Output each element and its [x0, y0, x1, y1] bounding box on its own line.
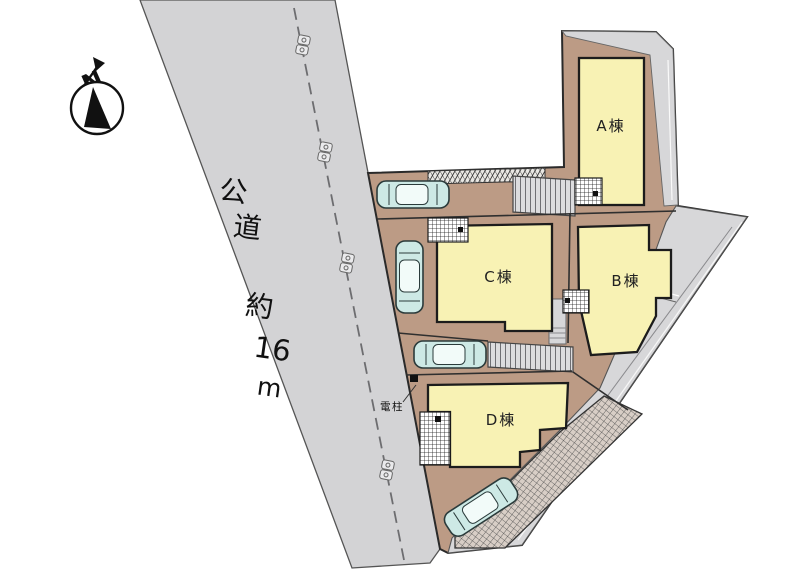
- road-label-char: 約: [244, 288, 276, 324]
- road-label-char: 道: [232, 209, 264, 245]
- building-a-label: A棟: [596, 117, 625, 135]
- utility-pole-label: 電柱: [380, 400, 404, 413]
- north-compass: N: [71, 57, 123, 134]
- entry-dot-b: [565, 298, 570, 303]
- building-c-label: C棟: [484, 268, 513, 286]
- road-label-char: 公: [218, 173, 250, 209]
- car-icon: [377, 181, 449, 208]
- property-plot: A棟 B棟 C棟 D棟: [368, 31, 747, 553]
- site-plan-canvas: 公 道 約 16 m: [0, 0, 800, 585]
- entry-dot-c: [458, 227, 463, 232]
- car-icon: [396, 241, 423, 313]
- building-b-label: B棟: [611, 272, 640, 290]
- road-label-char: 16: [252, 330, 293, 369]
- stairs-north: [513, 176, 575, 216]
- entry-dot-a: [593, 191, 598, 196]
- site-plan: 公 道 約 16 m: [0, 0, 800, 585]
- utility-pole-icon: [410, 375, 418, 382]
- road-label-char: m: [255, 371, 283, 403]
- car-icon: [414, 341, 486, 368]
- building-d-label: D棟: [486, 411, 517, 429]
- stairs-middle: [488, 342, 573, 372]
- entry-dot-d: [435, 416, 441, 422]
